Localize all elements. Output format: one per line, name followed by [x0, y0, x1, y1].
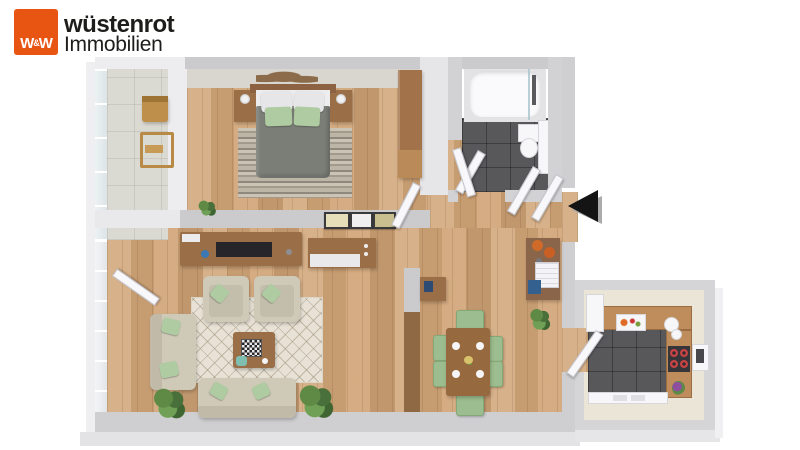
- balcony-table-shelf: [145, 145, 163, 153]
- wall-right-upper: [562, 57, 575, 188]
- pillow-green: [294, 106, 321, 126]
- sink-basin: [631, 395, 645, 401]
- wardrobe: [398, 70, 422, 178]
- toilet-bowl: [520, 138, 538, 158]
- bathroom-wall-left: [448, 57, 462, 140]
- picture-frame: [350, 212, 373, 229]
- tv-lowboard: [180, 232, 302, 266]
- sink-basin: [613, 395, 627, 401]
- potted-plant: [298, 382, 336, 420]
- sofa-backrest: [150, 314, 162, 390]
- sofa-backrest: [198, 406, 296, 418]
- slab-edge-bottom: [80, 432, 580, 446]
- windowsill-plant: [197, 200, 218, 216]
- sideboard: [308, 238, 376, 268]
- kitchen-bowl-small: [671, 329, 682, 340]
- living-dining-partition-wood: [404, 312, 420, 412]
- plate: [452, 370, 460, 378]
- teal-cushion: [236, 356, 247, 366]
- shower-fixture-icon: [532, 75, 536, 105]
- oven-door: [696, 349, 704, 363]
- sofa-bottom: [198, 378, 296, 418]
- floor-plan-render: [0, 0, 800, 450]
- dining-chair: [456, 394, 484, 416]
- kitchen-plant: [672, 381, 685, 395]
- nightstand-right: [330, 90, 352, 122]
- sideboard-handle: [364, 244, 368, 248]
- armchair: [254, 276, 300, 322]
- bedside-lamp-icon: [336, 94, 346, 104]
- slab-edge-kitchen-right: [715, 288, 723, 438]
- wall-top: [185, 57, 575, 69]
- oven: [692, 344, 709, 371]
- entry-box-blue: [528, 280, 541, 294]
- pillow-green: [209, 381, 230, 401]
- lowboard-drawer: [182, 234, 200, 242]
- bathroom-wall-bottom-left: [448, 190, 458, 202]
- sideboard-handle: [364, 252, 368, 256]
- dining-table: [446, 328, 490, 396]
- bathtub: [464, 66, 546, 122]
- shower-glass-panel: [528, 68, 530, 120]
- wall-right-middle: [562, 242, 575, 328]
- living-dining-partition: [404, 268, 420, 312]
- floorplan-page: W&W wüstenrot Immobilien: [0, 0, 800, 450]
- plate: [452, 342, 460, 350]
- desk-item-blue: [424, 281, 433, 292]
- picture-frame: [324, 212, 350, 229]
- potted-plant: [152, 386, 188, 420]
- decor-blue-bowl: [201, 250, 209, 258]
- wardrobe-lower-shelf: [398, 150, 422, 178]
- balcony-parapet-wall: [95, 210, 180, 228]
- plate: [476, 342, 484, 350]
- hall-desk: [420, 277, 446, 301]
- balcony-chair-backrest: [142, 96, 168, 102]
- chessboard: [241, 339, 262, 357]
- wall-top-balcony: [95, 57, 185, 69]
- tv-screen: [216, 242, 272, 257]
- bedroom-bathroom-wall: [420, 57, 448, 195]
- burner-icon: [680, 360, 688, 368]
- decor-gray-bowl: [286, 249, 292, 255]
- burner-icon: [670, 349, 678, 357]
- burner-icon: [670, 360, 678, 368]
- stove-cooktop: [668, 346, 690, 372]
- cutting-board-with-food: [616, 314, 646, 331]
- sideboard-front: [310, 254, 360, 267]
- sofa-left: [150, 314, 196, 390]
- kitchen-fridge: [586, 294, 604, 332]
- balcony-table: [140, 132, 174, 168]
- pillow-green: [160, 317, 181, 336]
- slab-edge-left: [86, 62, 95, 432]
- kitchen-sink-counter: [588, 392, 668, 404]
- burner-icon: [680, 349, 688, 357]
- pillow-green: [159, 360, 180, 378]
- bathroom-wall-right: [548, 57, 562, 192]
- table-centerpiece: [464, 356, 473, 364]
- armchair: [203, 276, 249, 322]
- bedside-lamp-icon: [240, 94, 250, 104]
- coffee-table: [233, 332, 275, 368]
- slab-edge-kitchen-bottom: [575, 430, 720, 442]
- decor-orange-ball: [532, 240, 543, 251]
- nightstand-left: [234, 90, 256, 122]
- pillow-green: [251, 381, 271, 400]
- decor-orange-ball: [544, 247, 555, 258]
- plate: [476, 370, 484, 378]
- entry-shelf: [526, 238, 560, 300]
- cup: [262, 358, 268, 364]
- plant-by-kitchen-door: [530, 306, 551, 332]
- entrance-arrow-icon: [568, 190, 598, 222]
- pillow-green: [265, 107, 293, 127]
- balcony-chair: [142, 96, 168, 122]
- window-wall-left: [95, 240, 107, 412]
